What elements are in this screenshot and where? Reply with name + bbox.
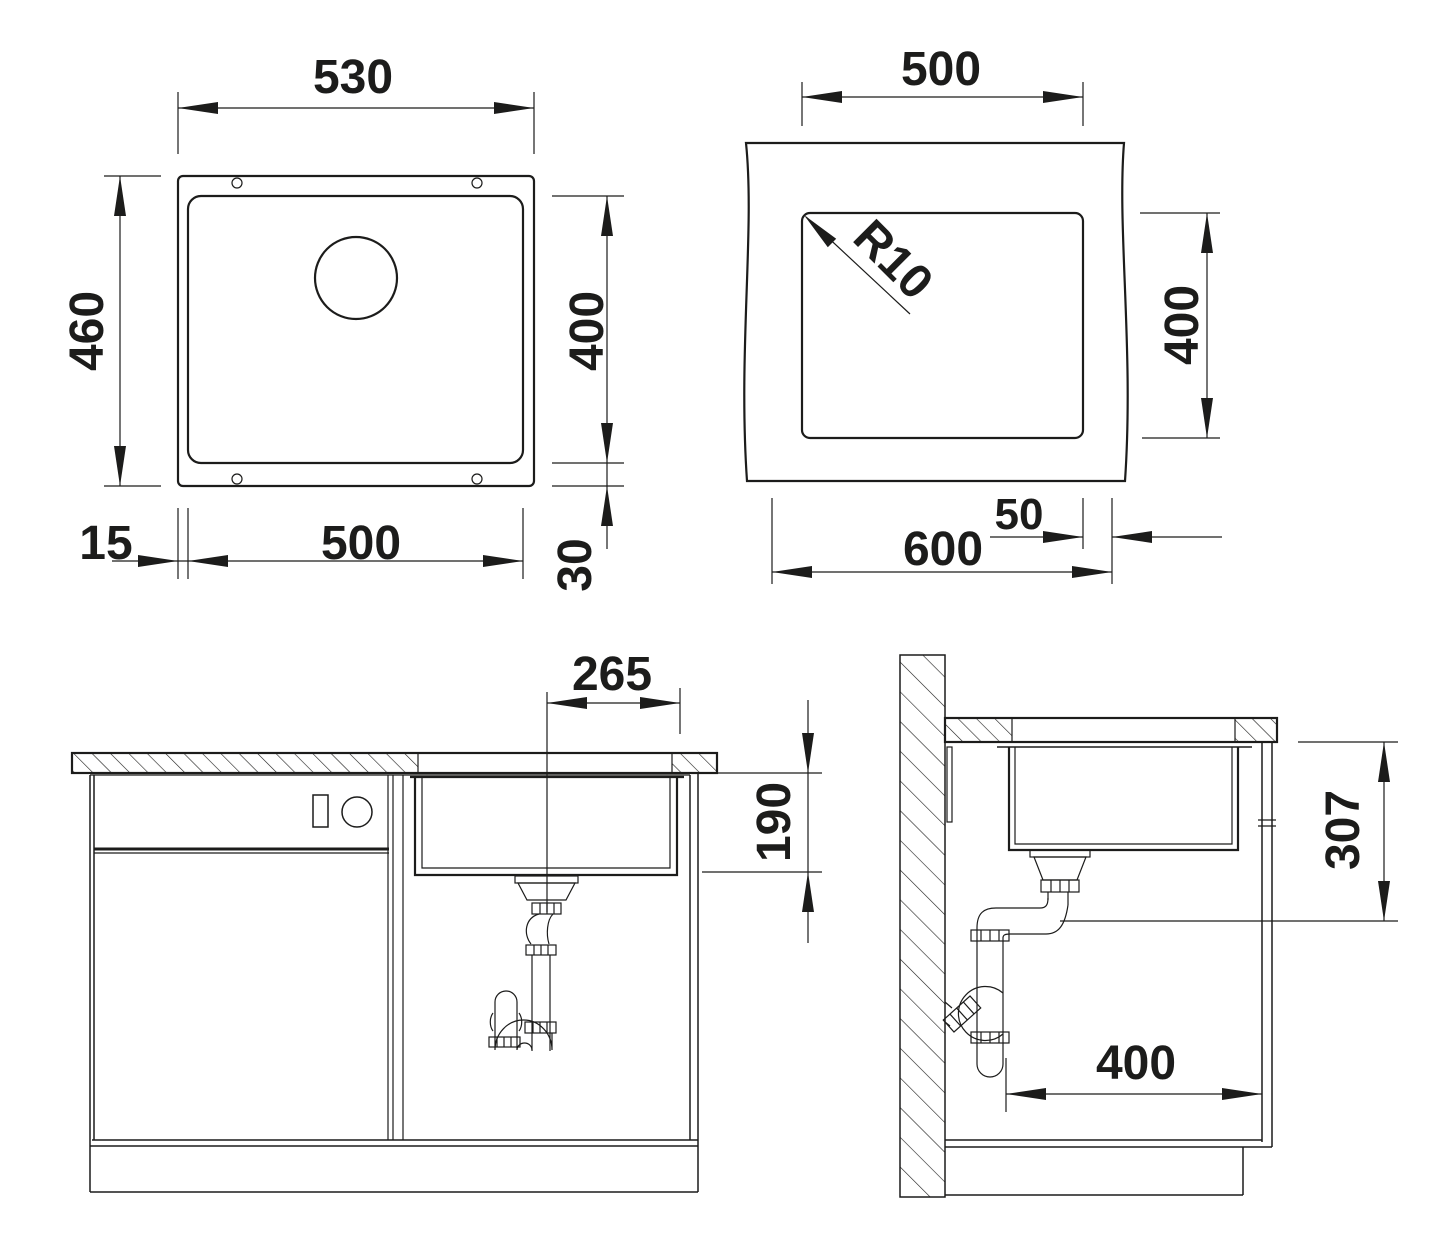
worktop-section-hatch	[72, 753, 418, 773]
drain-hole	[315, 237, 397, 319]
dim-460-overall-depth: 460	[61, 176, 161, 486]
wall-hatch	[900, 655, 945, 1197]
dim-label-307: 307	[1317, 790, 1370, 870]
dim-15-rim-offset: 15	[79, 508, 188, 579]
mounting-hole	[232, 178, 242, 188]
dim-50-edge-distance: 50	[990, 490, 1222, 584]
dim-400-clear-depth: 400	[1006, 1037, 1262, 1112]
dim-label-50: 50	[995, 490, 1044, 539]
dim-label-500-cutout: 500	[901, 43, 981, 96]
dim-30-rim-offset: 30	[549, 463, 624, 592]
dim-r10-corner-radius: R10	[804, 210, 943, 314]
cabinet-base-side	[945, 1140, 1272, 1195]
bowl-side-outline	[1009, 747, 1238, 850]
mounting-hole	[472, 474, 482, 484]
dim-530-overall-width: 530	[178, 51, 534, 154]
worktop-section-hatch	[1235, 718, 1277, 742]
cabinet-divider	[388, 775, 403, 1140]
dim-label-460: 460	[61, 291, 114, 371]
dim-label-400-side: 400	[1096, 1037, 1176, 1090]
cabinet-front-side	[1262, 742, 1272, 1147]
cabinet-left-wall	[90, 775, 94, 1192]
drawing-sheet: 530 460 400 500 15	[0, 0, 1445, 1239]
dim-label-30: 30	[549, 538, 602, 591]
worktop-section-hatch	[945, 718, 1012, 742]
side-section-view: 400 307	[900, 655, 1398, 1197]
front-elevation-view: 265 190	[72, 648, 822, 1192]
control-symbol-knob	[342, 797, 372, 827]
cabinet-base-plinth	[90, 1140, 698, 1192]
dim-190-bowl-height: 190	[702, 700, 822, 943]
dim-307-outlet-height: 307	[1060, 742, 1398, 921]
control-symbol-rect	[313, 795, 328, 827]
dim-label-15: 15	[79, 517, 132, 570]
dim-label-400: 400	[561, 291, 614, 371]
worktop-section-hatch	[672, 753, 717, 773]
drain-strainer-side	[1030, 850, 1090, 905]
bowl-front-outline	[415, 778, 677, 875]
technical-drawing-canvas: 530 460 400 500 15	[0, 0, 1445, 1239]
dim-label-500: 500	[321, 517, 401, 570]
dim-600-cabinet-width: 600	[772, 498, 1112, 584]
dim-265-drain-position: 265	[547, 648, 680, 734]
dim-label-400-cutout: 400	[1156, 285, 1209, 365]
dim-label-600: 600	[903, 523, 983, 576]
sink-outer-rim	[178, 176, 534, 486]
cabinet-right-wall	[690, 773, 698, 1192]
siphon-trap-front	[489, 955, 556, 1051]
sink-plan-view: 530 460 400 500 15	[61, 51, 624, 592]
mounting-hole	[232, 474, 242, 484]
dim-400-bowl-depth: 400	[552, 196, 624, 463]
dim-label-r10: R10	[843, 210, 943, 310]
rear-support-rail	[947, 747, 952, 822]
dim-label-190: 190	[748, 782, 801, 862]
worktop-cutout-view: R10 500 400 50 600	[744, 43, 1222, 584]
dim-label-530: 530	[313, 51, 393, 104]
mounting-hole	[472, 178, 482, 188]
dim-500-cutout-width: 500	[802, 43, 1083, 126]
dim-400-cutout-depth: 400	[1140, 213, 1220, 438]
drain-pipe-side	[943, 898, 1068, 1077]
dim-500-bowl-width: 500	[188, 508, 523, 579]
dim-label-265: 265	[572, 648, 652, 701]
